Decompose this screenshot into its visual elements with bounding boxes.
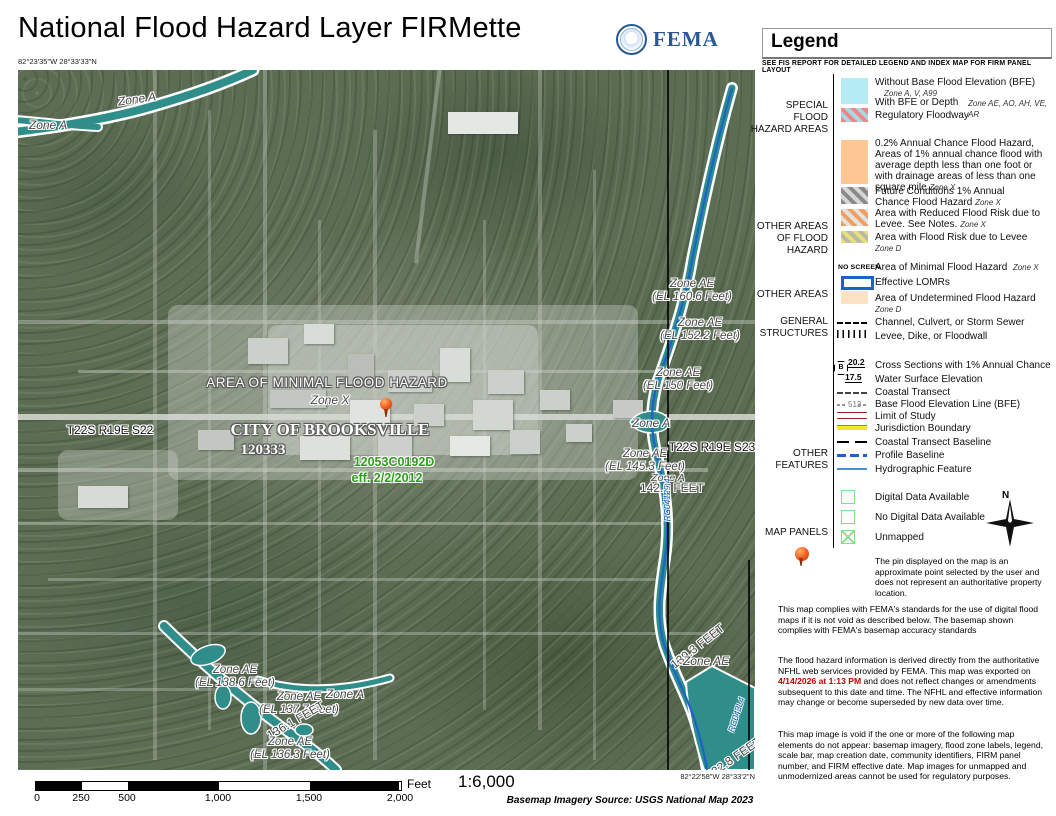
scale-tick: 1,000	[205, 792, 231, 804]
legend-divider	[833, 74, 834, 548]
section-label-other-areas: OTHER AREAS	[750, 289, 828, 301]
unmapped-checkbox-icon	[841, 530, 855, 544]
zone-ae-label: Zone AE (EL 138.6 Feet)	[195, 664, 275, 690]
legend-item: Limit of Study	[875, 411, 936, 422]
section-label: T22S R19E S22	[67, 424, 154, 438]
legend-item: Coastal Transect Baseline	[875, 437, 991, 448]
firmette-page: { "header": { "title": "National Flood H…	[0, 0, 1056, 816]
cross-section-value: 20.2	[848, 357, 865, 368]
water-surface-value: 17.5	[845, 372, 862, 383]
pin-note: The pin displayed on the map is an appro…	[875, 556, 1047, 598]
zone-ae-label: Zone AE (EL 150 Feet)	[643, 367, 713, 393]
channel-line-symbol	[837, 322, 867, 324]
legend-item: Hydrographic Feature	[875, 464, 972, 475]
profile-baseline-symbol	[837, 454, 867, 457]
community-name-label: CITY OF BROOKSVILLE	[230, 420, 429, 440]
scale-segment	[36, 782, 82, 790]
zone-ae-label: Zone AE (EL 152.2 Feet)	[660, 317, 740, 343]
scale-tick: 500	[118, 792, 136, 804]
scale-segment	[219, 782, 310, 790]
fema-seal-icon	[616, 24, 647, 55]
legend-subtitle: SEE FIS REPORT FOR DETAILED LEGEND AND I…	[762, 60, 1048, 74]
scale-segment	[128, 782, 219, 790]
minimal-flood-hazard-label: AREA OF MINIMAL FLOOD HAZARD	[206, 375, 448, 391]
firm-panel-number-label: 12053C0192D	[354, 455, 435, 469]
zone-label: Zone A	[632, 417, 670, 431]
risk-due-levee-swatch	[841, 231, 868, 243]
legend-item: With BFE or Depth	[875, 97, 958, 108]
effective-lomr-swatch	[841, 276, 874, 290]
zone-label: Zone A	[29, 119, 67, 133]
scale-tick: 1,500	[296, 792, 322, 804]
scale-segment	[82, 782, 128, 790]
legend-item: Unmapped	[875, 532, 924, 543]
legend-item: Area with Flood Risk due to Levee Zone D	[875, 232, 1047, 254]
levee-line-symbol	[837, 330, 867, 338]
section-label-map-panels: MAP PANELS	[750, 527, 828, 539]
zone-ae-label: Zone AE	[683, 655, 729, 669]
export-note: The flood hazard information is derived …	[778, 655, 1044, 708]
fema-logo: FEMA	[616, 24, 719, 55]
zone-x-label: Zone X	[311, 394, 350, 408]
undetermined-swatch	[841, 291, 868, 304]
legend-item: Area of Undetermined Flood Hazard Zone D	[875, 293, 1056, 315]
flood-map[interactable]: Zone A Zone A AREA OF MINIMAL FLOOD HAZA…	[18, 70, 755, 770]
compliance-note: This map complies with FEMA's standards …	[778, 604, 1044, 636]
legend-item: Digital Data Available	[875, 492, 969, 503]
firm-effective-date-label: eff. 2/2/2012	[352, 471, 423, 485]
legend-item: Effective LOMRs	[875, 277, 950, 288]
zone-label: Zone A	[326, 688, 364, 702]
no-screen-symbol: NO SCREEN	[838, 264, 880, 271]
legend-pin-icon	[795, 547, 809, 561]
zone-ae-label: Zone AE (EL 145.3 Feet)	[605, 448, 685, 474]
no-digital-data-checkbox-icon	[841, 510, 855, 524]
bfe-squiggle-left	[837, 404, 847, 406]
digital-data-checkbox-icon	[841, 490, 855, 504]
legend-item: Coastal Transect	[875, 387, 950, 398]
legend-item: Base Flood Elevation Line (BFE)	[875, 399, 1020, 410]
map-corner-coordinate-topleft: 82°23'35"W 28°33'33"N	[18, 57, 97, 66]
section-label-other-flood: OTHER AREAS OF FLOOD HAZARD	[750, 221, 828, 257]
void-note: This map image is void if the one or mor…	[778, 729, 1044, 782]
legend-item: Levee, Dike, or Floodwall	[875, 331, 987, 342]
legend-title: Legend	[762, 28, 1052, 59]
future-conditions-swatch	[841, 187, 868, 204]
scale-tick: 2,000	[387, 792, 413, 804]
jurisdiction-boundary-symbol	[837, 425, 867, 430]
stream-station-label: RC04129.4	[663, 478, 673, 521]
bfe-squiggle-right	[858, 404, 868, 406]
section-label-sfha: SPECIAL FLOOD HAZARD AREAS	[750, 100, 828, 136]
export-date: 4/14/2026 at 1:13 PM	[778, 676, 861, 686]
legend-item: Area of Minimal Flood Hazard Zone X	[875, 262, 1039, 273]
scale-tick: 0	[34, 792, 40, 804]
scale-segment	[310, 782, 399, 790]
legend-item: No Digital Data Available	[875, 512, 985, 523]
sfha-swatch	[841, 78, 868, 104]
map-corner-coordinate-bottomright: 82°22'58"W 28°33'2"N	[655, 772, 755, 781]
section-label-structures: GENERAL STRUCTURES	[750, 316, 828, 340]
zone-ae-label: Zone AE (EL 160.6 Feet)	[652, 278, 732, 304]
legend-item: Cross Sections with 1% Annual Chance	[875, 360, 1051, 371]
scale-tick: 250	[72, 792, 90, 804]
map-pin-icon	[380, 398, 392, 410]
legend-item: 0.2% Annual Chance Flood Hazard, Areas o…	[875, 138, 1049, 193]
legend-item: Water Surface Elevation	[875, 374, 982, 385]
legend-item: Without Base Flood Elevation (BFE)	[875, 77, 1047, 88]
legend-item: Channel, Culvert, or Storm Sewer	[875, 317, 1025, 328]
coastal-transect-symbol	[837, 392, 867, 394]
hydrographic-feature-symbol	[837, 468, 867, 470]
legend-item: Future Conditions 1% Annual Chance Flood…	[875, 186, 1035, 208]
legend-item: Profile Baseline	[875, 450, 944, 461]
scale-ratio: 1:6,000	[458, 772, 515, 792]
legend-item: Regulatory Floodway	[875, 110, 969, 121]
reduced-risk-levee-swatch	[841, 209, 868, 226]
north-arrow-icon	[985, 498, 1035, 548]
legend-item: Jurisdiction Boundary	[875, 423, 971, 434]
zone-ae-label: Zone AE (EL 136.3 Feet)	[250, 736, 330, 762]
limit-of-study-symbol	[837, 412, 867, 419]
legend-zone-note: Zone AE, AO, AH, VE, AR	[968, 98, 1056, 120]
page-title: National Flood Hazard Layer FIRMette	[18, 12, 522, 45]
floodway-swatch	[841, 108, 868, 122]
fema-wordmark: FEMA	[653, 27, 719, 52]
legend-item: Area with Reduced Flood Risk due to Leve…	[875, 208, 1043, 230]
flood-02pct-swatch	[841, 140, 868, 184]
scale-unit: Feet	[407, 777, 431, 791]
scale-bar	[35, 781, 402, 791]
basemap-source: Basemap Imagery Source: USGS National Ma…	[455, 795, 805, 806]
community-id-label: 120333	[241, 442, 286, 459]
section-label-other-features: OTHER FEATURES	[750, 448, 828, 472]
coastal-baseline-symbol	[837, 441, 867, 443]
